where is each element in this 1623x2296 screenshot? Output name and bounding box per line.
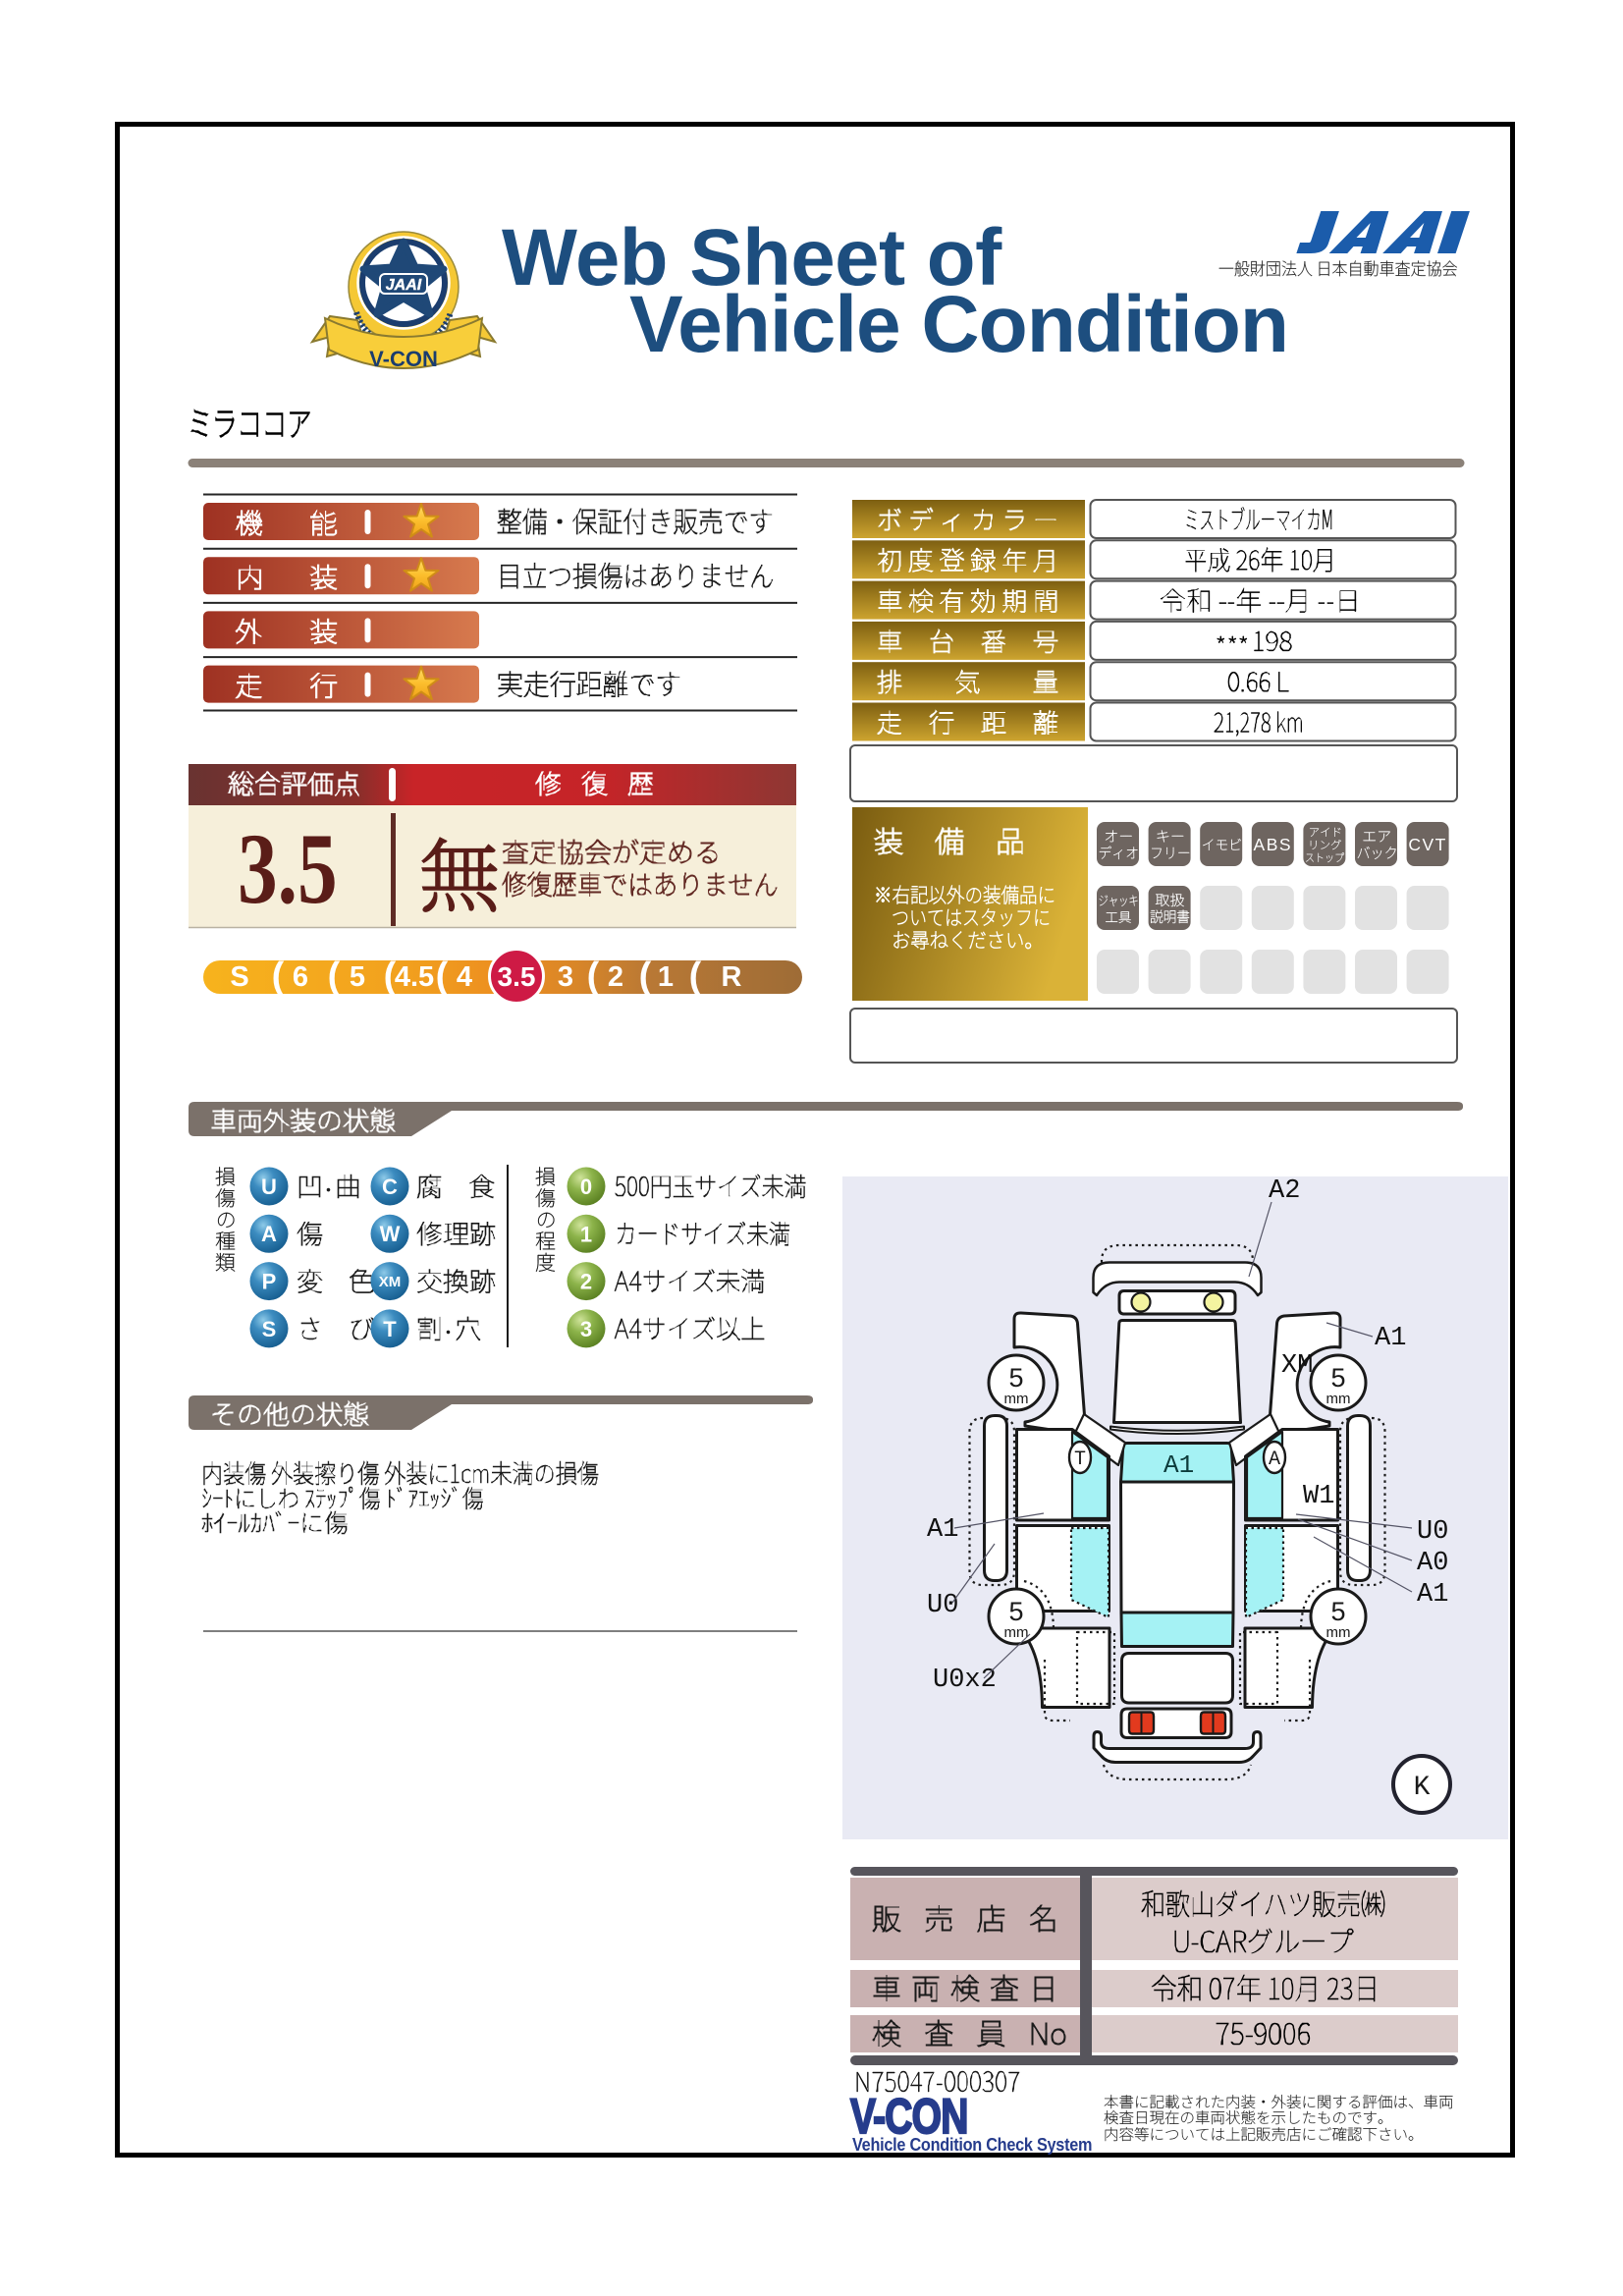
- svg-text:(: (: [272, 956, 285, 997]
- svg-text:S: S: [230, 961, 248, 993]
- svg-text:W1: W1: [1303, 1482, 1334, 1511]
- svg-text:S: S: [262, 1317, 277, 1341]
- svg-text:V-CON: V-CON: [369, 347, 438, 371]
- svg-text:5: 5: [1330, 1363, 1345, 1393]
- svg-text:U: U: [261, 1175, 277, 1199]
- svg-text:A2: A2: [1269, 1176, 1300, 1206]
- svg-text:3.5: 3.5: [498, 961, 536, 992]
- svg-text:JAAI: JAAI: [386, 277, 422, 294]
- svg-text:A1: A1: [927, 1515, 958, 1545]
- svg-text:(: (: [689, 956, 702, 997]
- svg-text:0: 0: [580, 1175, 592, 1199]
- svg-text:Vehicle Condition: Vehicle Condition: [629, 280, 1288, 369]
- svg-text:(: (: [328, 956, 341, 997]
- svg-text:(: (: [639, 956, 652, 997]
- svg-text:3: 3: [580, 1317, 592, 1341]
- svg-text:T: T: [1074, 1449, 1086, 1471]
- svg-text:XM: XM: [1281, 1351, 1313, 1381]
- svg-text:A: A: [261, 1222, 277, 1246]
- svg-text:6: 6: [293, 961, 308, 993]
- svg-text:U0: U0: [927, 1591, 958, 1620]
- svg-text:A0: A0: [1417, 1549, 1448, 1578]
- svg-text:K: K: [1414, 1773, 1431, 1803]
- svg-text:1: 1: [580, 1222, 592, 1246]
- svg-text:mm: mm: [1004, 1391, 1029, 1407]
- svg-text:A1: A1: [1417, 1580, 1448, 1610]
- svg-text:U0: U0: [1417, 1517, 1448, 1547]
- svg-text:(: (: [436, 956, 449, 997]
- svg-text:3.5: 3.5: [238, 813, 338, 925]
- svg-text:1: 1: [658, 961, 674, 993]
- svg-text:U0x2: U0x2: [933, 1666, 997, 1695]
- svg-text:T: T: [383, 1317, 397, 1341]
- svg-text:CVT: CVT: [1408, 835, 1447, 854]
- svg-text:A1: A1: [1375, 1324, 1406, 1353]
- svg-text:3: 3: [558, 961, 573, 993]
- svg-text:2: 2: [608, 961, 623, 993]
- svg-text:C: C: [382, 1175, 398, 1199]
- svg-text:2: 2: [580, 1270, 592, 1294]
- svg-text:Vehicle Condition Check System: Vehicle Condition Check System: [852, 2134, 1092, 2155]
- svg-text:4.5: 4.5: [395, 961, 434, 993]
- svg-text:mm: mm: [1326, 1391, 1351, 1407]
- svg-text:XM: XM: [379, 1274, 402, 1290]
- svg-text:(: (: [587, 956, 600, 997]
- svg-text:5: 5: [350, 961, 365, 993]
- svg-text:5: 5: [1008, 1597, 1023, 1626]
- svg-text:5: 5: [1330, 1597, 1345, 1626]
- svg-text:mm: mm: [1326, 1624, 1351, 1641]
- svg-text:R: R: [722, 961, 742, 993]
- svg-text:P: P: [262, 1270, 277, 1294]
- svg-text:A: A: [1269, 1449, 1280, 1471]
- svg-text:5: 5: [1008, 1363, 1023, 1393]
- svg-text:A1: A1: [1163, 1450, 1194, 1480]
- svg-text:4: 4: [457, 961, 472, 993]
- svg-text:W: W: [380, 1222, 401, 1246]
- svg-text:ABS: ABS: [1254, 835, 1293, 854]
